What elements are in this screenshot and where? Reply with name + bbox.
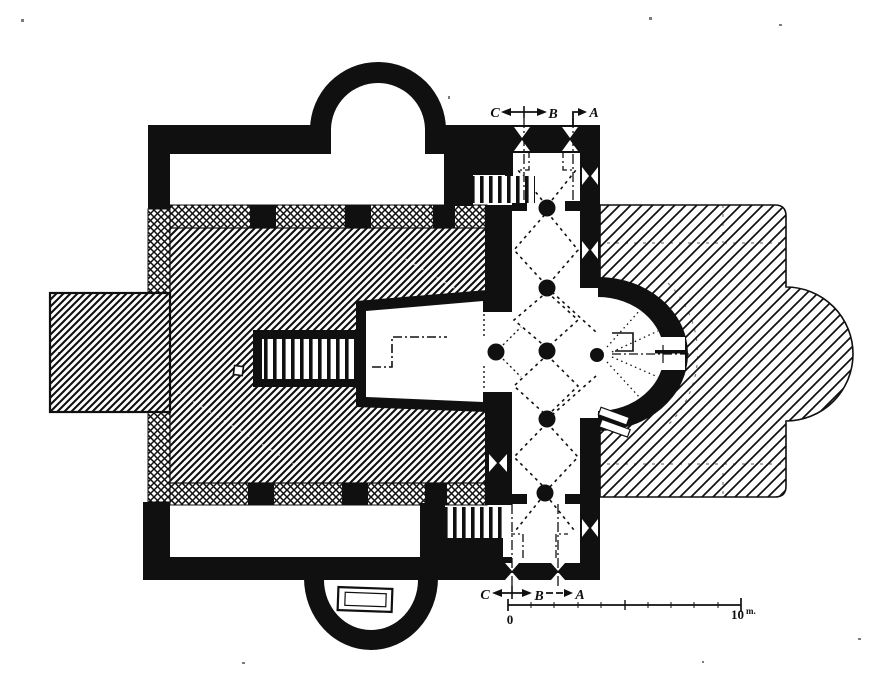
- section-marker-top: C B A: [490, 106, 598, 125]
- section-marker-bottom: C B A: [480, 586, 584, 604]
- north-pier: [250, 205, 276, 228]
- arrowhead-right: [578, 108, 587, 116]
- northeast-wall-lower: [444, 175, 473, 206]
- northeast-wall-block: [444, 125, 512, 175]
- tomb-slab: [338, 587, 393, 612]
- section-label-b-bottom: B: [533, 589, 543, 604]
- central-room: [356, 290, 487, 412]
- church-east-wall-south: [580, 418, 600, 580]
- arrowhead-right: [564, 589, 573, 597]
- west-door-column: [488, 344, 505, 361]
- section-label-c-top: C: [490, 106, 500, 121]
- west-annex: [50, 293, 170, 412]
- wall-stub: [565, 494, 580, 504]
- south-pier: [342, 483, 368, 505]
- west-wall-upper: [148, 125, 170, 209]
- floor-plan-drawing: C B A C B A 0 10 m.: [0, 0, 881, 685]
- north-stair-treads: [473, 176, 535, 203]
- apse-window-mullion: [655, 350, 685, 354]
- stair-corridor-treads: [262, 339, 368, 379]
- north-wall-west: [148, 125, 312, 154]
- south-pier: [248, 483, 274, 505]
- section-label-b-top: B: [547, 107, 557, 122]
- wall-stub: [565, 201, 580, 211]
- south-staircase: [445, 507, 503, 538]
- hall-stair-corridor: [233, 330, 368, 387]
- door-jamb-symbol: [233, 365, 243, 375]
- narthex-west-wall: [505, 153, 513, 176]
- south-pier: [425, 483, 447, 505]
- scale-start-label: 0: [507, 612, 514, 627]
- south-stair-west-post: [420, 503, 445, 580]
- north-pier: [345, 205, 371, 228]
- naos-columns: [537, 200, 556, 502]
- west-wall-hatched-lower: [148, 412, 170, 502]
- central-room-floor: [366, 301, 483, 402]
- scale-bar: 0 10 m.: [507, 598, 756, 627]
- section-label-a-bottom: A: [574, 588, 584, 603]
- arrowhead-right: [522, 589, 532, 597]
- section-label-c-bottom: C: [480, 588, 490, 603]
- arrowhead-left: [492, 589, 502, 597]
- west-wall-hatched-upper: [148, 209, 170, 293]
- north-pier: [433, 205, 455, 228]
- scale-end-unit: m.: [746, 606, 756, 616]
- section-label-a-top: A: [588, 106, 598, 121]
- arrowhead-right: [537, 108, 547, 116]
- scale-end-value: 10: [731, 607, 744, 622]
- church-east-wall-north: [580, 125, 600, 288]
- altar-support: [590, 348, 604, 362]
- wall-stub: [512, 494, 527, 504]
- south-stair-treads: [445, 507, 503, 538]
- floor-plan-page: C B A C B A 0 10 m.: [0, 0, 881, 685]
- south-stair-under-block: [445, 537, 503, 563]
- north-staircase: [473, 176, 535, 203]
- arrowhead-left: [501, 108, 511, 116]
